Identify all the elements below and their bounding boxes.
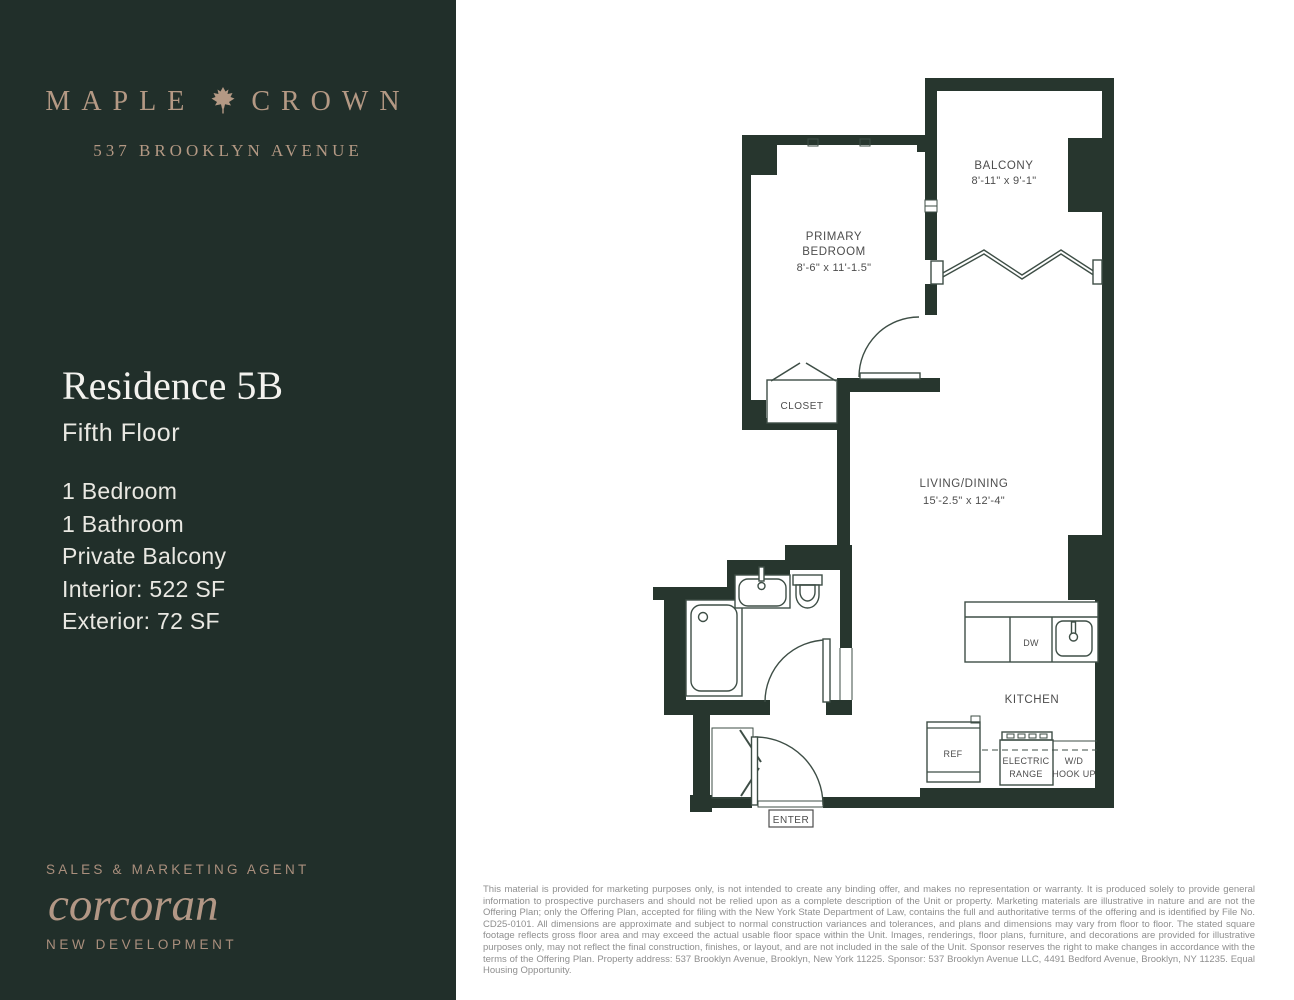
kitchen-label: KITCHEN xyxy=(1005,694,1060,706)
bedroom-label-line1: PRIMARY xyxy=(806,231,862,243)
agent-label: SALES & MARKETING AGENT xyxy=(46,862,309,877)
bedroom-door xyxy=(859,317,920,379)
wd-label-line1: W/D xyxy=(1065,756,1084,766)
feature-interior-sf: Interior: 522 SF xyxy=(62,573,283,606)
kitchen-counter xyxy=(965,602,1098,662)
wd-label-line2: HOOK UP xyxy=(1052,769,1096,779)
feature-exterior-sf: Exterior: 72 SF xyxy=(62,605,283,638)
ref-label: REF xyxy=(944,749,963,759)
floor-plan: BALCONY 8'-11" x 9'-1" PRIMARY BEDROOM 8… xyxy=(650,60,1125,850)
bathtub xyxy=(686,600,742,696)
bedroom-dims: 8'-6" x 11'-1.5" xyxy=(797,262,872,274)
brand-name-right: CROWN xyxy=(251,86,410,118)
residence-title: Residence 5B xyxy=(62,366,283,406)
balcony-dims: 8'-11" x 9'-1" xyxy=(972,175,1037,187)
bedroom-label-line2: BEDROOM xyxy=(802,246,866,258)
toilet xyxy=(793,575,822,608)
closet-bifold-doors xyxy=(767,363,837,423)
living-dims: 15'-2.5" x 12'-4" xyxy=(923,495,1005,507)
living-label: LIVING/DINING xyxy=(920,478,1009,490)
residence-features: 1 Bedroom 1 Bathroom Private Balcony Int… xyxy=(62,475,283,638)
feature-bedrooms: 1 Bedroom xyxy=(62,475,283,508)
closet-label: CLOSET xyxy=(780,401,823,412)
corcoran-logo: corcoran xyxy=(48,882,309,929)
feature-balcony: Private Balcony xyxy=(62,540,283,573)
range-label-line1: ELECTRIC xyxy=(1003,756,1050,766)
entry-door xyxy=(752,737,824,807)
maple-leaf-icon xyxy=(211,87,235,114)
brand-logo: MAPLE CROWN xyxy=(0,86,456,118)
agent-sub-label: NEW DEVELOPMENT xyxy=(46,937,309,952)
legal-disclaimer: This material is provided for marketing … xyxy=(483,884,1255,977)
range-label-line2: RANGE xyxy=(1009,769,1043,779)
balcony-accordion-door xyxy=(931,250,1102,284)
sidebar: MAPLE CROWN 537 BROOKLYN AVENUE Residenc… xyxy=(0,0,456,1000)
balcony-label: BALCONY xyxy=(974,160,1033,172)
residence-floor: Fifth Floor xyxy=(62,419,283,448)
floorplan-sheet: MAPLE CROWN 537 BROOKLYN AVENUE Residenc… xyxy=(0,0,1294,1000)
residence-info: Residence 5B Fifth Floor 1 Bedroom 1 Bat… xyxy=(62,366,283,638)
feature-bathrooms: 1 Bathroom xyxy=(62,508,283,541)
brand-name-left: MAPLE xyxy=(45,86,195,118)
bathroom-door xyxy=(765,639,852,702)
brand-address: 537 BROOKLYN AVENUE xyxy=(0,141,456,161)
agent-block: SALES & MARKETING AGENT corcoran NEW DEV… xyxy=(46,862,309,952)
enter-label: ENTER xyxy=(773,815,809,826)
dw-label: DW xyxy=(1023,638,1039,648)
bedroom-window xyxy=(925,200,937,212)
